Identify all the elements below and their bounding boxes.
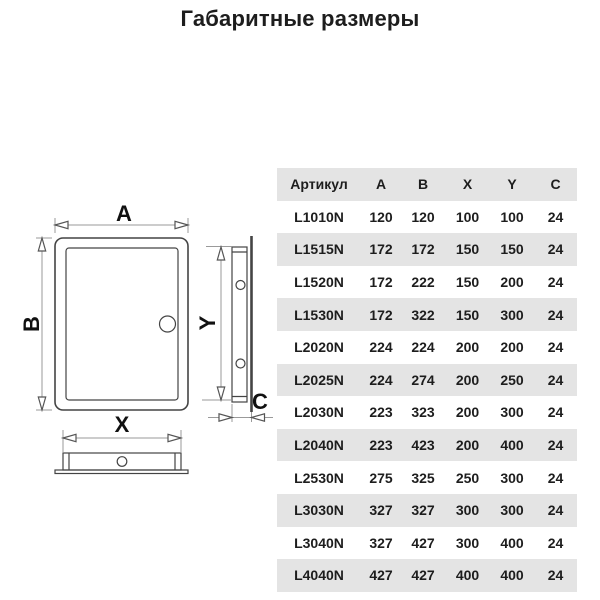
table-row: L3030N32732730030024 (277, 494, 577, 527)
dimension-value-cell: 224 (401, 331, 445, 364)
dimension-value-cell: 322 (401, 298, 445, 331)
dimension-x: X (63, 412, 181, 452)
side-view-frame-body (232, 247, 247, 402)
article-cell: L1010N (277, 201, 361, 234)
table-row: L1515N17217215015024 (277, 233, 577, 266)
bottom-view-hole-icon (117, 457, 127, 467)
article-cell: L2530N (277, 461, 361, 494)
dim-label-x: X (115, 412, 130, 437)
article-cell: L3040N (277, 527, 361, 560)
dim-label-a: A (116, 201, 132, 226)
article-cell: L3030N (277, 494, 361, 527)
arrow-left-icon (252, 414, 265, 421)
dimension-value-cell: 200 (490, 266, 534, 299)
arrow-right-icon (175, 221, 188, 228)
dimension-value-cell: 120 (361, 201, 401, 234)
bottom-view-tray (63, 453, 181, 470)
dimension-value-cell: 224 (361, 331, 401, 364)
table-row: L1010N12012010010024 (277, 201, 577, 234)
dimension-value-cell: 200 (445, 396, 490, 429)
dimension-value-cell: 24 (534, 396, 577, 429)
arrow-right-icon (168, 434, 181, 441)
dim-label-b: B (19, 316, 44, 332)
column-header-c: C (534, 168, 577, 201)
dimension-value-cell: 100 (490, 201, 534, 234)
dimension-value-cell: 200 (490, 331, 534, 364)
bottom-view-flange-lines (69, 453, 175, 470)
dimension-value-cell: 224 (361, 364, 401, 397)
dimension-value-cell: 300 (445, 527, 490, 560)
dimension-value-cell: 24 (534, 201, 577, 234)
arrow-up-icon (38, 238, 45, 251)
dimension-value-cell: 172 (361, 233, 401, 266)
dimension-value-cell: 427 (361, 559, 401, 592)
table-row: L2530N27532525030024 (277, 461, 577, 494)
side-view (232, 236, 252, 412)
arrow-right-icon (219, 414, 232, 421)
column-header-b: B (401, 168, 445, 201)
dimension-value-cell: 200 (445, 364, 490, 397)
page-title: Габаритные размеры (0, 6, 600, 32)
dimensions-table: АртикулABXYC L1010N12012010010024L1515N1… (277, 168, 577, 592)
dimension-value-cell: 24 (534, 429, 577, 462)
dimension-value-cell: 24 (534, 527, 577, 560)
dimension-y: Y (195, 247, 232, 401)
arrow-down-icon (38, 397, 45, 410)
dimension-value-cell: 24 (534, 364, 577, 397)
dimension-value-cell: 323 (401, 396, 445, 429)
dimension-value-cell: 24 (534, 559, 577, 592)
dimension-value-cell: 423 (401, 429, 445, 462)
dimension-value-cell: 24 (534, 331, 577, 364)
dimension-value-cell: 172 (361, 298, 401, 331)
dimension-value-cell: 223 (361, 396, 401, 429)
bottom-view (55, 453, 188, 474)
dimension-value-cell: 300 (490, 396, 534, 429)
dimension-value-cell: 24 (534, 494, 577, 527)
dim-label-c: C (252, 389, 268, 414)
table-body: L1010N12012010010024L1515N17217215015024… (277, 201, 577, 592)
side-view-cap-lines (232, 252, 247, 397)
table-header-row: АртикулABXYC (277, 168, 577, 201)
dimension-value-cell: 222 (401, 266, 445, 299)
dimension-value-cell: 172 (401, 233, 445, 266)
article-cell: L1530N (277, 298, 361, 331)
dim-label-y: Y (195, 315, 220, 330)
dimension-value-cell: 150 (445, 233, 490, 266)
bottom-view-base-plate (55, 470, 188, 474)
table-row: L2040N22342320040024 (277, 429, 577, 462)
dimension-value-cell: 120 (401, 201, 445, 234)
article-cell: L4040N (277, 559, 361, 592)
column-header-article: Артикул (277, 168, 361, 201)
column-header-y: Y (490, 168, 534, 201)
dimension-value-cell: 400 (490, 429, 534, 462)
dimension-value-cell: 200 (445, 429, 490, 462)
dimension-value-cell: 327 (361, 527, 401, 560)
article-cell: L2030N (277, 396, 361, 429)
arrow-left-icon (63, 434, 76, 441)
side-view-hole-icon (236, 281, 245, 290)
article-cell: L2020N (277, 331, 361, 364)
dimension-value-cell: 24 (534, 233, 577, 266)
dimension-value-cell: 24 (534, 298, 577, 331)
technical-drawing: A B X Y C (15, 190, 285, 490)
side-view-hole-icon (236, 359, 245, 368)
front-view-outer-frame (55, 238, 188, 410)
column-header-a: A (361, 168, 401, 201)
dimension-value-cell: 400 (445, 559, 490, 592)
article-cell: L2040N (277, 429, 361, 462)
dimension-value-cell: 300 (490, 461, 534, 494)
dimension-value-cell: 274 (401, 364, 445, 397)
arrow-down-icon (217, 387, 224, 400)
dimension-value-cell: 150 (490, 233, 534, 266)
arrow-up-icon (217, 247, 224, 260)
dimension-value-cell: 400 (490, 559, 534, 592)
table-row: L1520N17222215020024 (277, 266, 577, 299)
table-row: L4040N42742740040024 (277, 559, 577, 592)
table-row: L1530N17232215030024 (277, 298, 577, 331)
dimension-value-cell: 275 (361, 461, 401, 494)
dimension-value-cell: 150 (445, 298, 490, 331)
dimension-value-cell: 250 (445, 461, 490, 494)
dimension-value-cell: 427 (401, 527, 445, 560)
dimension-value-cell: 300 (490, 298, 534, 331)
dimension-value-cell: 150 (445, 266, 490, 299)
front-view (55, 238, 188, 410)
dimension-value-cell: 100 (445, 201, 490, 234)
column-header-x: X (445, 168, 490, 201)
article-cell: L1520N (277, 266, 361, 299)
dimension-a: A (55, 201, 188, 233)
table-row: L2025N22427420025024 (277, 364, 577, 397)
dimension-value-cell: 427 (401, 559, 445, 592)
dimension-value-cell: 325 (401, 461, 445, 494)
dimension-value-cell: 24 (534, 461, 577, 494)
front-view-door-panel (66, 248, 178, 400)
table-row: L3040N32742730040024 (277, 527, 577, 560)
dimension-value-cell: 24 (534, 266, 577, 299)
dimension-b: B (19, 238, 52, 410)
dimension-value-cell: 400 (490, 527, 534, 560)
article-cell: L1515N (277, 233, 361, 266)
article-cell: L2025N (277, 364, 361, 397)
dimension-value-cell: 200 (445, 331, 490, 364)
table-row: L2030N22332320030024 (277, 396, 577, 429)
dimension-value-cell: 223 (361, 429, 401, 462)
table-row: L2020N22422420020024 (277, 331, 577, 364)
dimension-c: C (208, 389, 273, 422)
dimension-value-cell: 250 (490, 364, 534, 397)
dimension-value-cell: 172 (361, 266, 401, 299)
door-handle-icon (160, 316, 176, 332)
arrow-left-icon (55, 221, 68, 228)
dimension-value-cell: 300 (445, 494, 490, 527)
dimension-value-cell: 300 (490, 494, 534, 527)
dimension-value-cell: 327 (361, 494, 401, 527)
dimension-value-cell: 327 (401, 494, 445, 527)
